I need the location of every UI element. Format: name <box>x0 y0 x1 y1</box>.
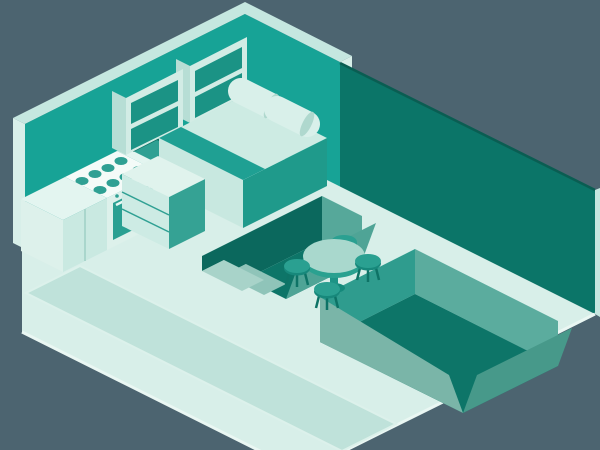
isometric-room-scene <box>0 0 600 450</box>
stool-seat <box>355 254 381 268</box>
burner-icon <box>89 170 102 178</box>
burner-icon <box>102 164 115 172</box>
pillow-body <box>277 109 307 124</box>
stool-seat <box>284 259 310 273</box>
burner-icon <box>115 157 128 165</box>
stool-seat <box>314 282 340 296</box>
scene-svg <box>0 0 600 450</box>
shelf-side-panel <box>112 91 126 155</box>
burner-icon <box>107 179 120 187</box>
table-top <box>303 239 365 273</box>
stove-knob <box>115 194 119 198</box>
right-wall-far-end-cap <box>595 188 600 317</box>
